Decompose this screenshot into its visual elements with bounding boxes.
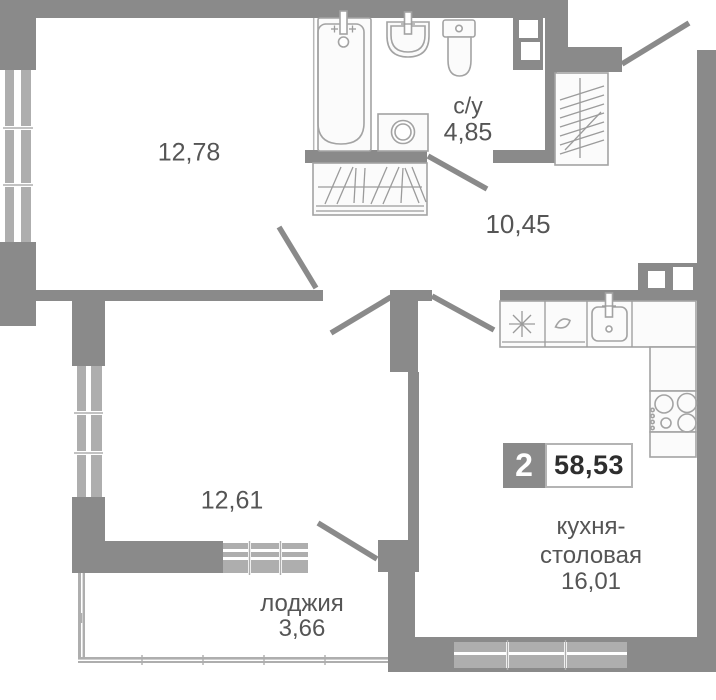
door-swing-entry: [622, 23, 689, 64]
washing-machine-icon: [378, 114, 428, 151]
bedroom-area-label: 12,61: [201, 489, 264, 514]
bathtub-icon: [318, 11, 371, 151]
door-swing-living: [279, 227, 316, 288]
loggia-name-label: лоджия: [260, 592, 344, 616]
door-swing-bedroom: [331, 297, 391, 333]
wardrobe-icon: [313, 163, 427, 215]
kitchen-area-label: 16,01: [561, 570, 621, 594]
entry-closet-icon: [555, 73, 608, 165]
bathroom-area-label: 4,85: [444, 121, 493, 146]
window: [0, 70, 36, 242]
loggia-glazing: [78, 573, 388, 665]
loggia-area-label: 3,66: [279, 617, 326, 641]
hallway-area-label: 10,45: [485, 211, 550, 237]
floor-plan: 12,78 с/у 4,85 10,45 12,61 лоджия 3,66 к…: [0, 0, 716, 700]
living-room-area-label: 12,78: [158, 141, 221, 166]
vent-shaft-icon: [513, 8, 543, 70]
window: [454, 640, 627, 670]
apartment-badge: 2 58,53: [503, 443, 633, 488]
bathroom-name-label: с/у: [453, 95, 482, 118]
vent-shaft-icon: [638, 263, 697, 291]
kitchen-name-label-line1: кухня-: [556, 515, 625, 539]
kitchen-counter: [500, 293, 696, 347]
door-swing-kitchen: [432, 296, 494, 330]
door-swing-bathroom: [428, 156, 487, 189]
total-area-badge: 58,53: [545, 443, 633, 488]
room-count-badge: 2: [503, 443, 545, 488]
bathroom-sink-icon: [387, 12, 429, 57]
door-swing-loggia: [318, 523, 377, 559]
toilet-icon: [443, 20, 475, 76]
kitchen-counter-right: [650, 347, 697, 457]
kitchen-name-label-line2: столовая: [540, 544, 642, 568]
floor-plan-drawing: [0, 0, 716, 700]
window: [223, 541, 308, 575]
window: [72, 366, 105, 497]
